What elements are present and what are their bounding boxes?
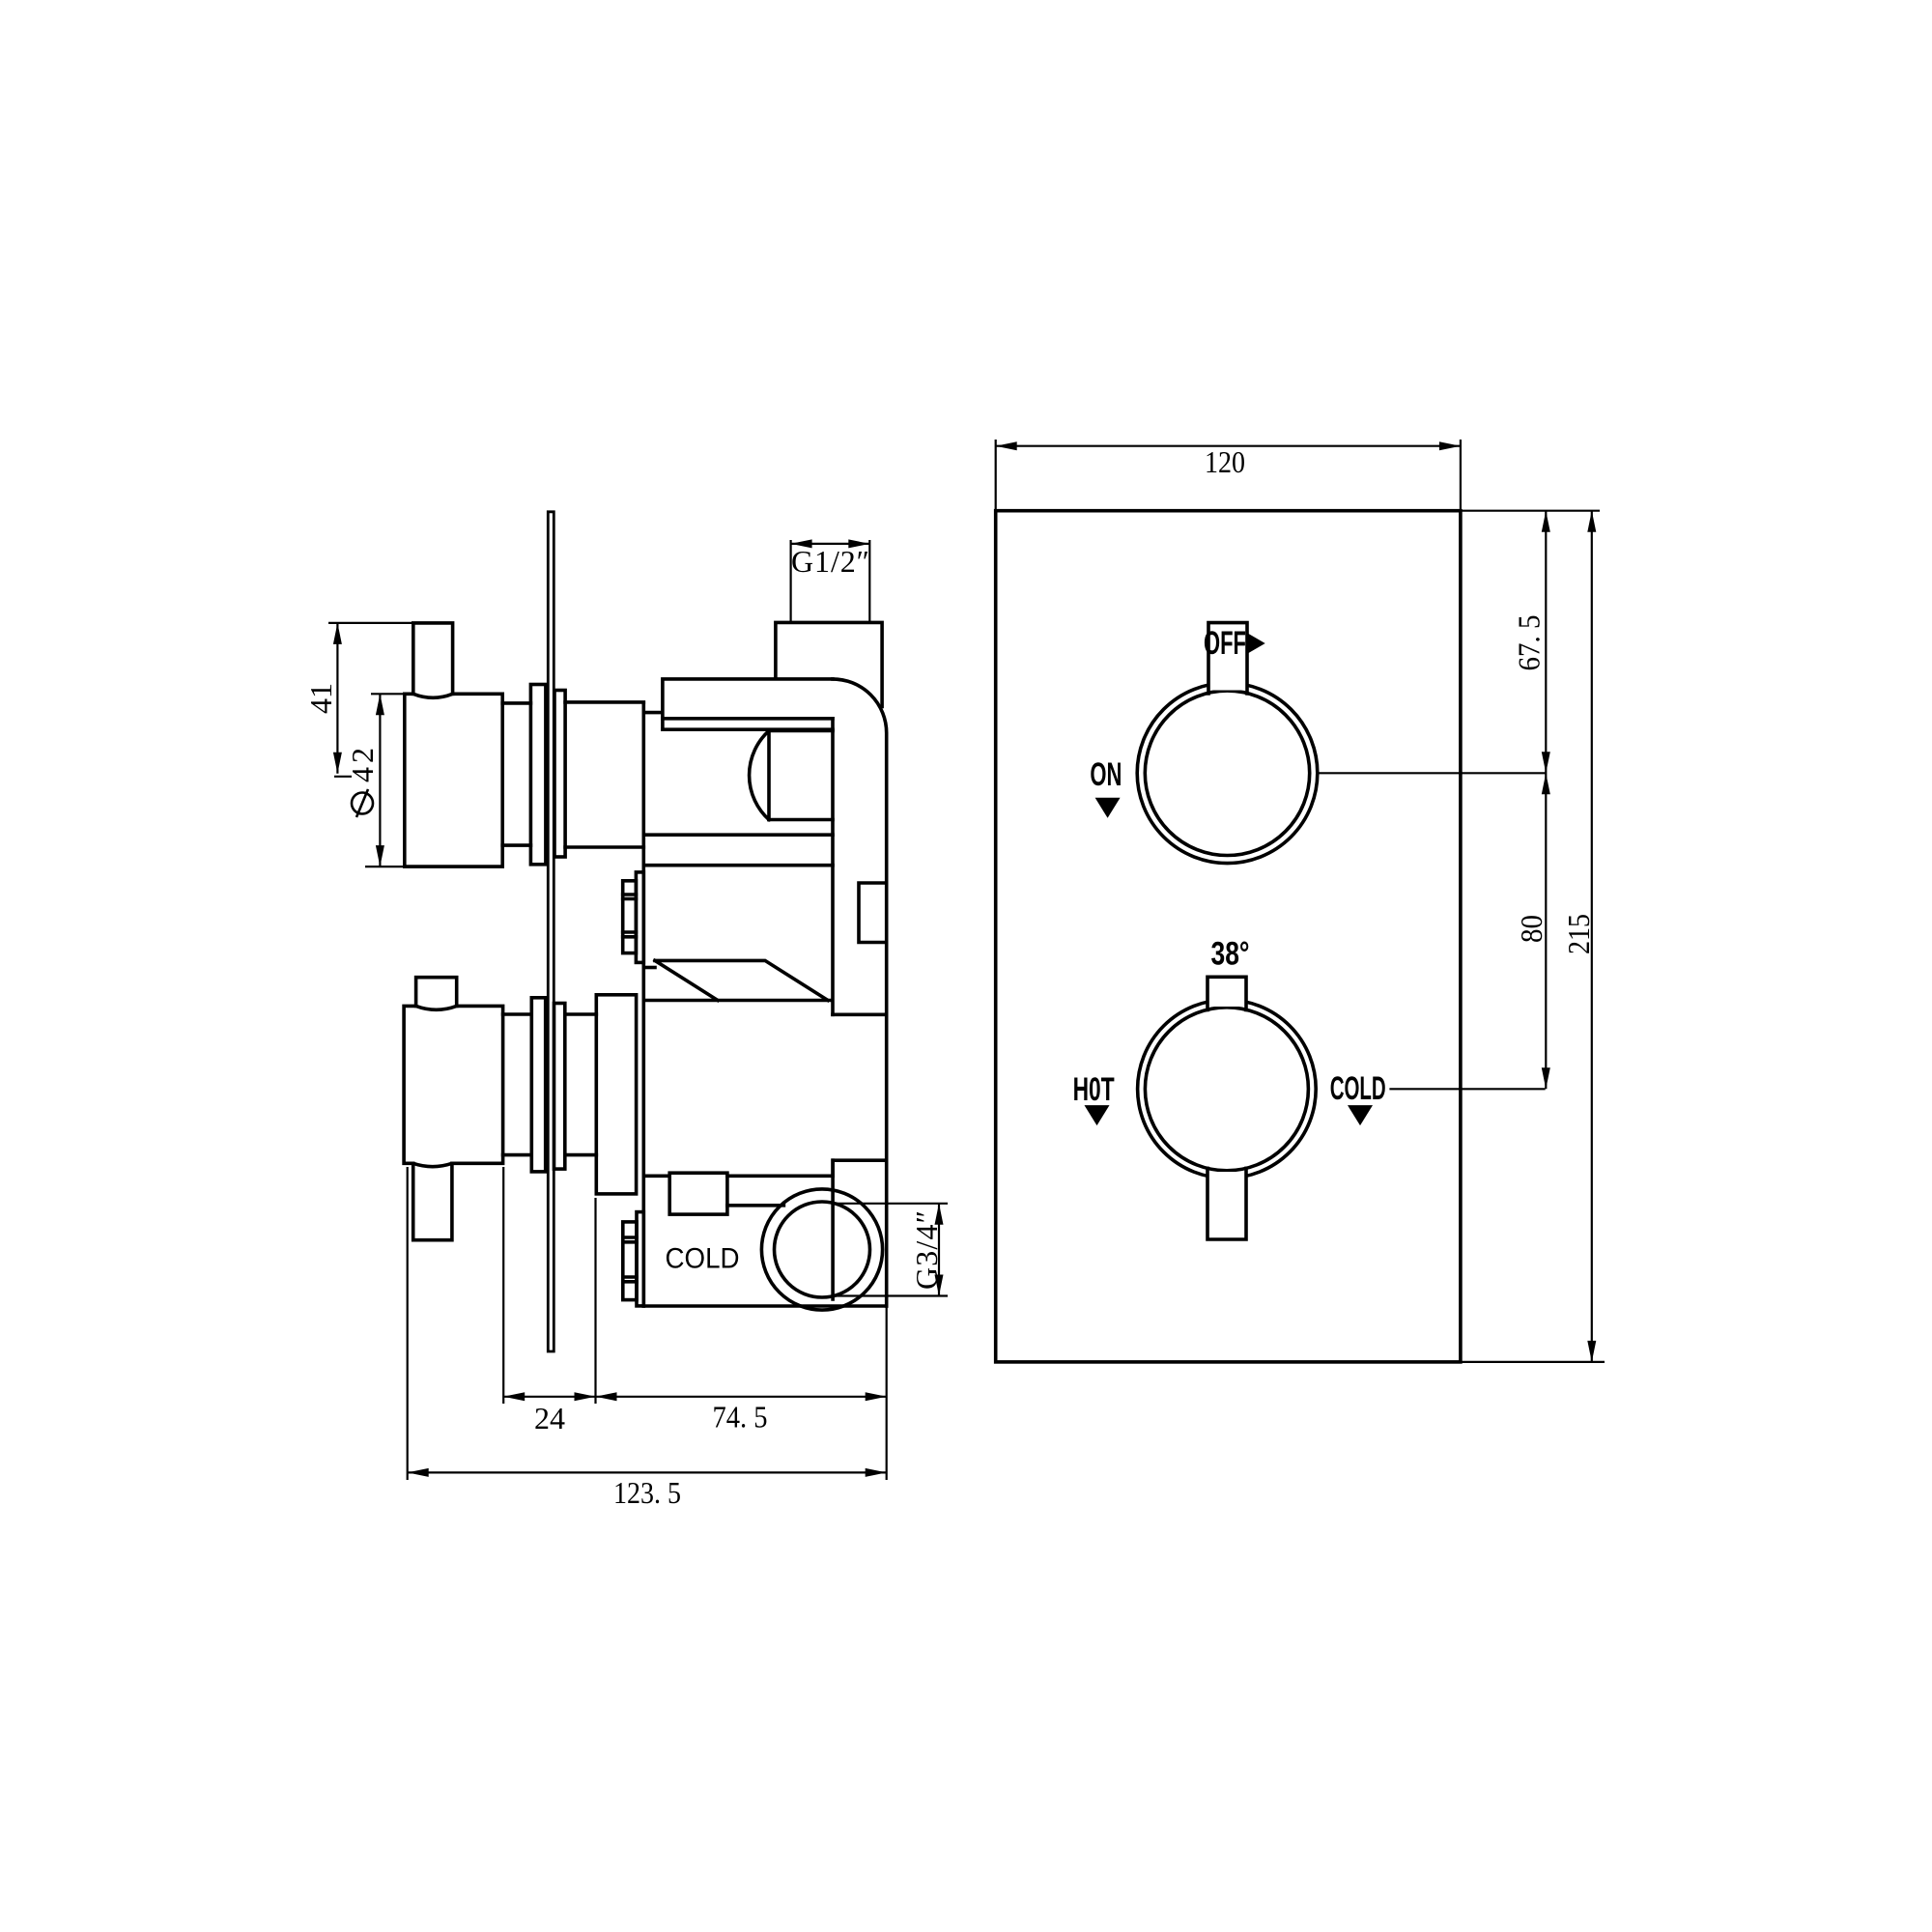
svg-text:74. 5: 74. 5 xyxy=(713,1400,768,1435)
svg-text:67. 5: 67. 5 xyxy=(1512,615,1547,671)
svg-text:COLD: COLD xyxy=(666,1243,740,1275)
svg-text:41: 41 xyxy=(303,683,338,714)
svg-text:215: 215 xyxy=(1561,914,1596,954)
svg-text:G3/4″: G3/4″ xyxy=(909,1210,944,1290)
svg-text:80: 80 xyxy=(1514,915,1548,943)
svg-text:OFF: OFF xyxy=(1204,625,1246,662)
svg-text:COLD: COLD xyxy=(1330,1070,1386,1107)
svg-text:H0T: H0T xyxy=(1073,1071,1115,1108)
svg-text:G1/2″: G1/2″ xyxy=(791,544,869,579)
svg-text:24: 24 xyxy=(534,1401,565,1435)
svg-text:123. 5: 123. 5 xyxy=(613,1475,681,1510)
svg-text:38°: 38° xyxy=(1211,936,1250,973)
svg-text:120: 120 xyxy=(1205,444,1245,479)
svg-text:ON: ON xyxy=(1090,756,1122,793)
